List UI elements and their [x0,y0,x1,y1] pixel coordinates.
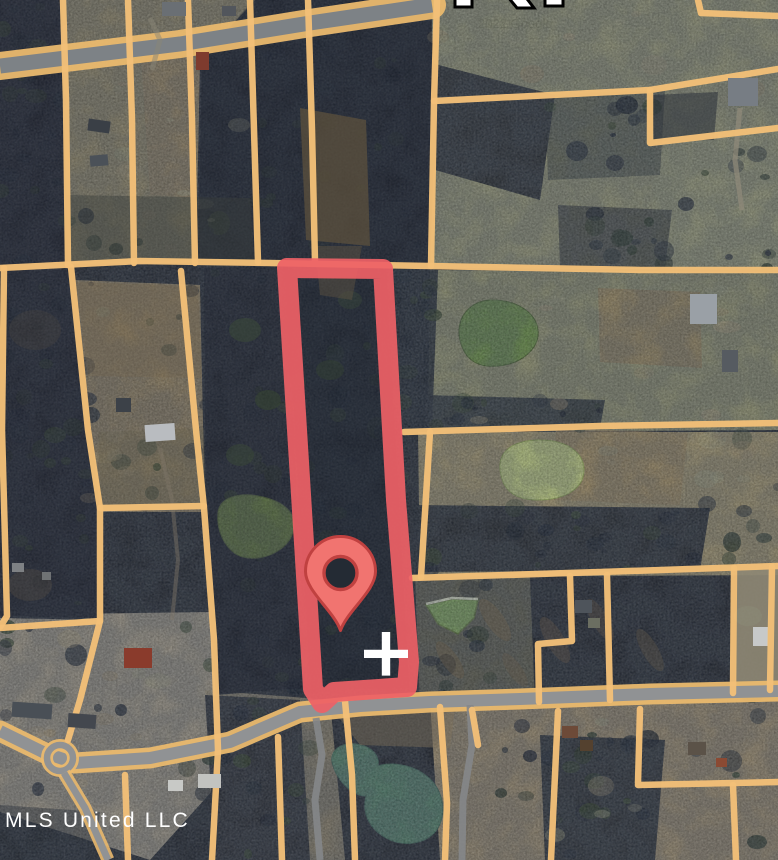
svg-text:2022 Google: 2022 Google [478,16,552,31]
svg-text:MLS United LLC: MLS United LLC [5,809,190,832]
